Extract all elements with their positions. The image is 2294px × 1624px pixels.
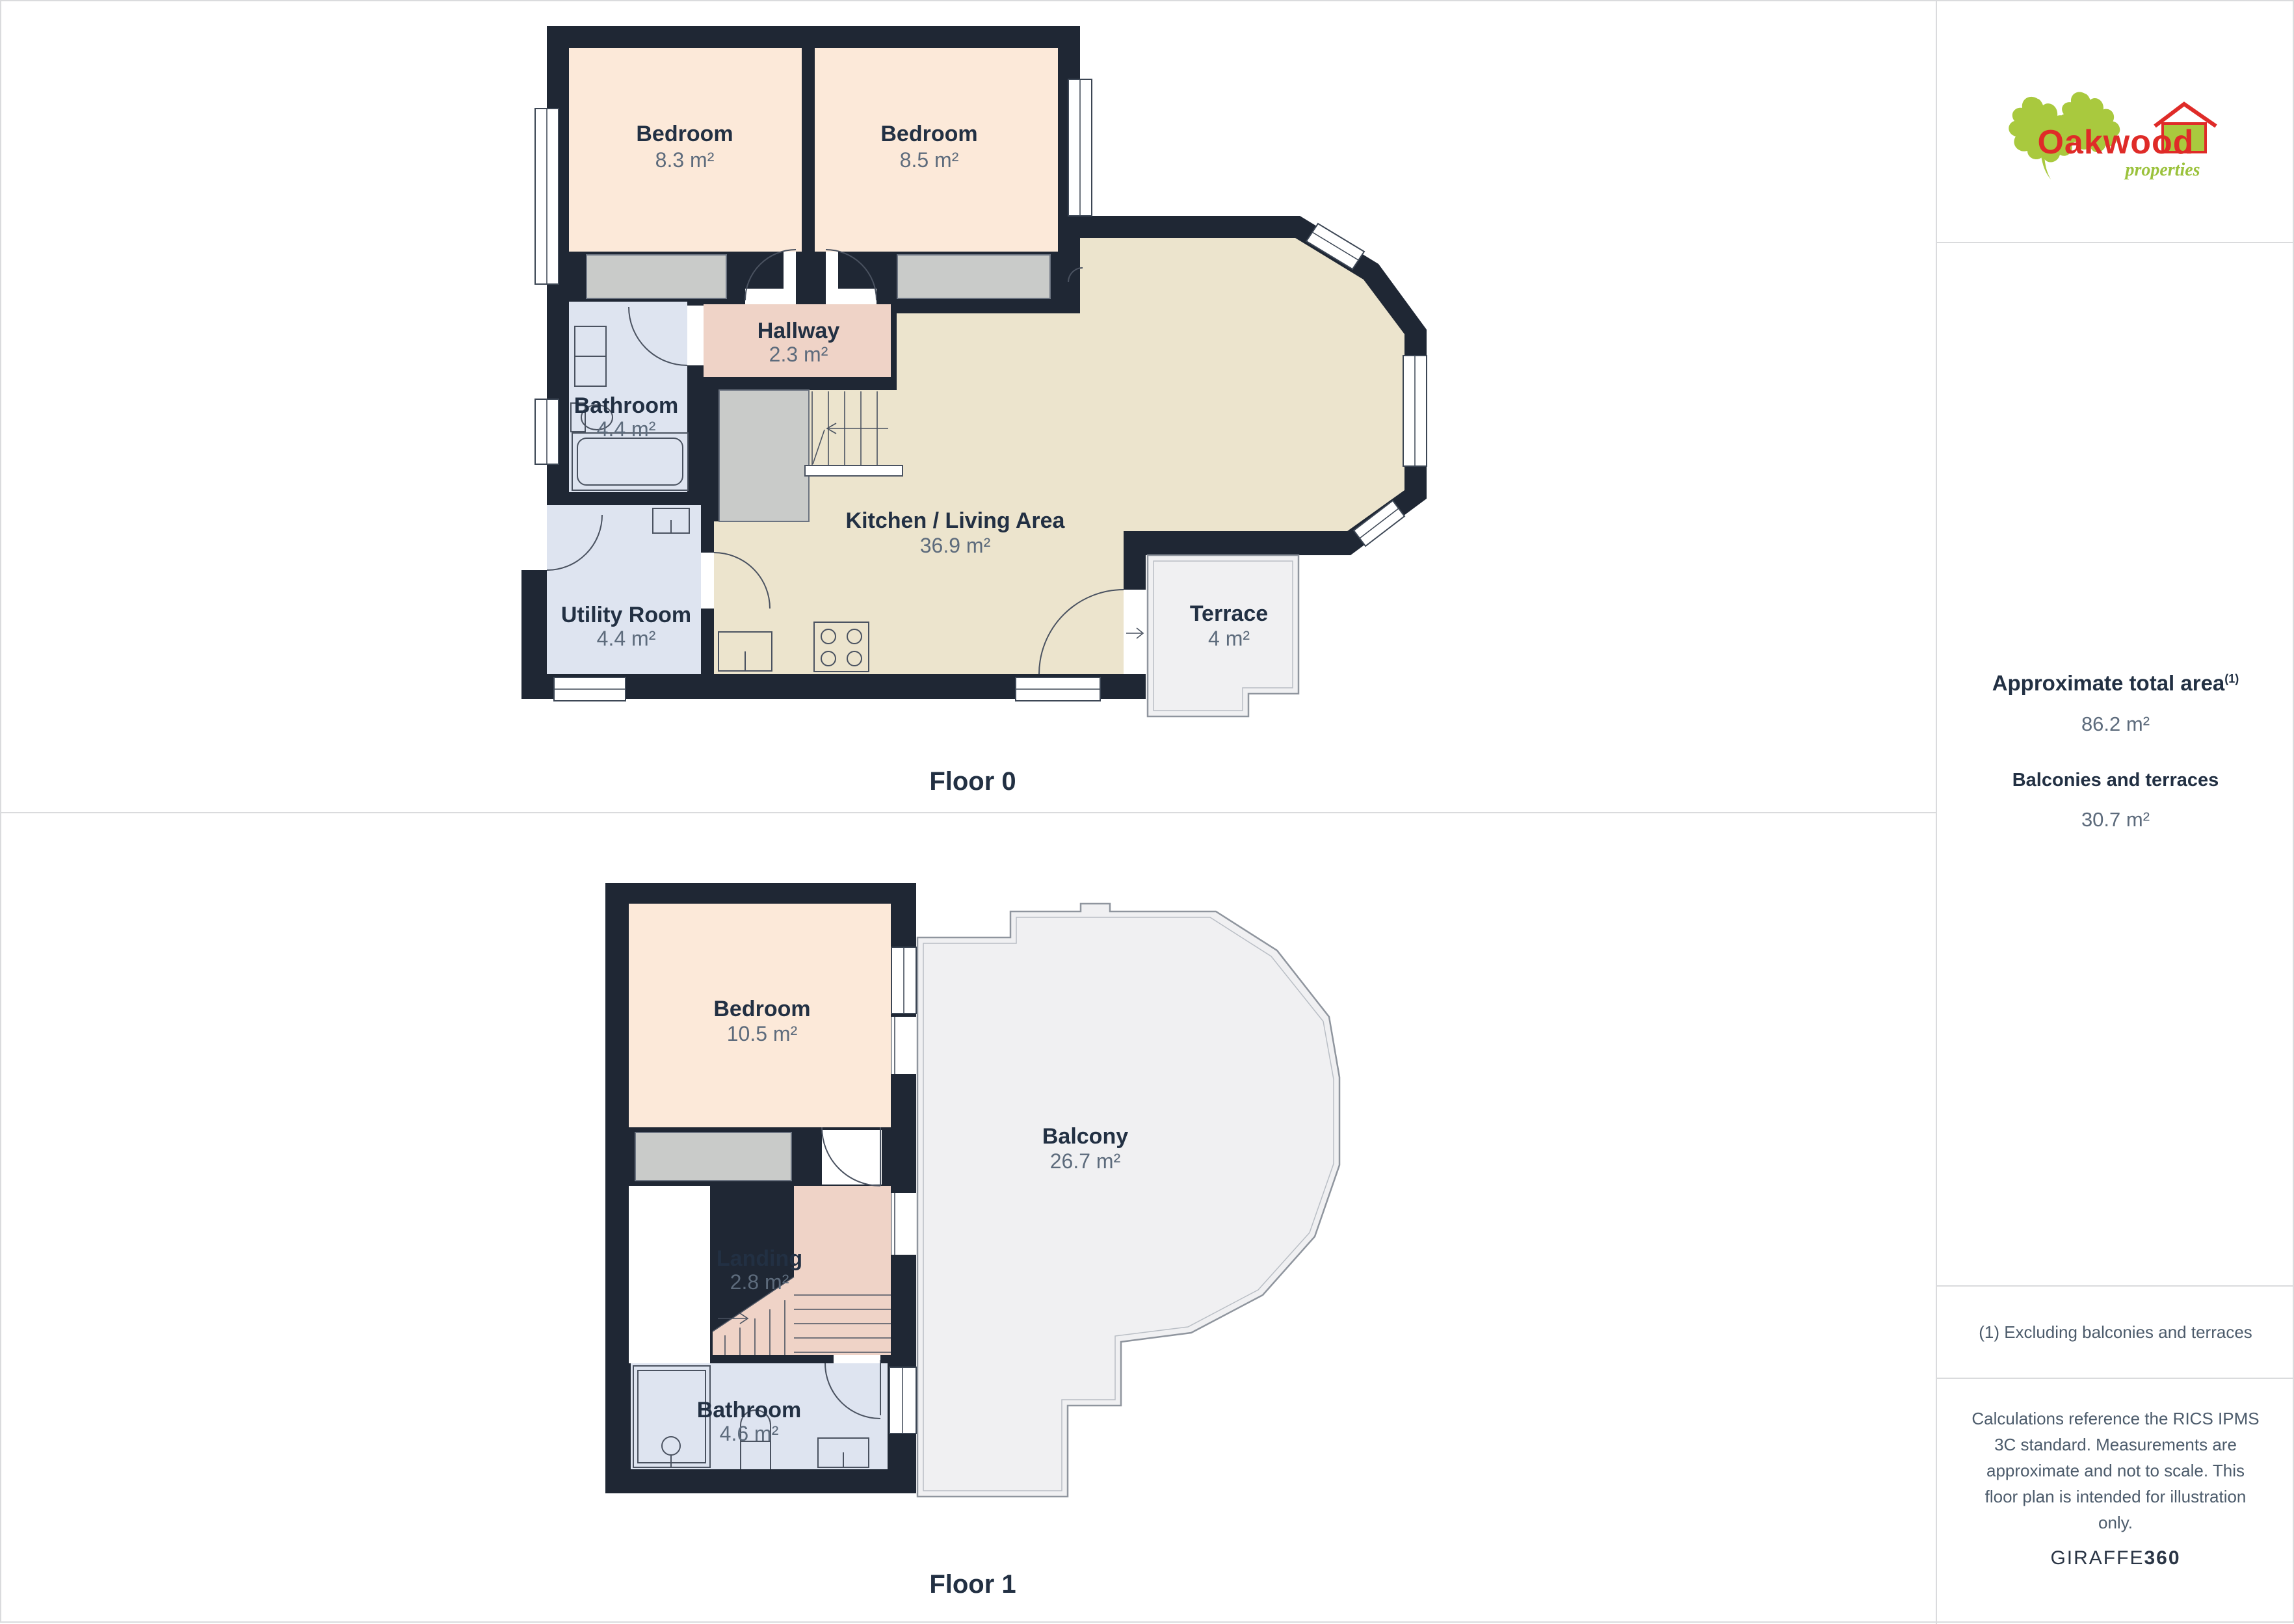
balcony: [917, 904, 1339, 1497]
closet-bedroom-2: [897, 255, 1050, 298]
credit-regular: GIRAFFE: [2050, 1547, 2144, 1569]
closet-bedroom-1: [587, 255, 726, 298]
logo-sub-text: properties: [2124, 160, 2200, 180]
room-area: 10.5 m²: [727, 1022, 798, 1045]
room-label: Bedroom: [713, 997, 810, 1021]
room-area: 26.7 m²: [1050, 1149, 1121, 1173]
disclaimer-line: only.: [1937, 1510, 2294, 1536]
room-area: 36.9 m²: [920, 534, 991, 557]
room-area: 4.6 m²: [720, 1422, 779, 1445]
disclaimer-line: approximate and not to scale. This: [1937, 1458, 2294, 1484]
disclaimer-line: 3C standard. Measurements are: [1937, 1432, 2294, 1458]
credit-bold: 360: [2144, 1547, 2180, 1569]
bedroom-f1-door: [822, 1127, 882, 1186]
room-area: 4 m²: [1208, 627, 1250, 650]
understair-area: [719, 390, 809, 521]
balconies-heading: Balconies and terraces: [1937, 770, 2294, 791]
room-area: 8.5 m²: [900, 148, 959, 172]
room-label: Terrace: [1190, 601, 1268, 626]
room-label: Hallway: [758, 319, 840, 343]
logo-brand-text: Oakwood: [2037, 124, 2194, 161]
floor-0-plan: Bedroom 8.3 m² Bedroom 8.5 m² Hallway 2.…: [1, 1, 1936, 812]
room-label: Balcony: [1042, 1124, 1128, 1149]
sidebar-section-divider: [1937, 1378, 2294, 1379]
room-label: Bedroom: [880, 122, 977, 146]
panel-divider: [1, 812, 1936, 813]
room-label: Bathroom: [574, 393, 679, 418]
room-label: Kitchen / Living Area: [846, 508, 1066, 533]
closet-bedroom-f1: [635, 1133, 791, 1181]
room-label: Bathroom: [697, 1398, 802, 1422]
room-label: Landing: [717, 1246, 802, 1271]
total-area-heading: Approximate total area(1): [1937, 671, 2294, 696]
sidebar-section-divider: [1937, 1285, 2294, 1287]
disclaimer: Calculations reference the RICS IPMS 3C …: [1937, 1406, 2294, 1536]
room-label: Utility Room: [561, 603, 691, 627]
giraffe360-credit: GIRAFFE360: [1937, 1547, 2294, 1569]
room-area: 4.4 m²: [597, 417, 656, 441]
floor-1-plan: Bedroom 10.5 m² Balcony 26.7 m² Landing …: [1, 812, 1936, 1624]
void-area: [629, 1186, 710, 1363]
footnote-marker: (1): [2224, 672, 2239, 685]
room-area: 2.8 m²: [730, 1270, 789, 1294]
floorplan-page: Bedroom 8.3 m² Bedroom 8.5 m² Hallway 2.…: [0, 0, 2294, 1623]
disclaimer-line: floor plan is intended for illustration: [1937, 1484, 2294, 1510]
footnote: (1) Excluding balconies and terraces: [1937, 1322, 2294, 1342]
disclaimer-line: Calculations reference the RICS IPMS: [1937, 1406, 2294, 1432]
room-area: 2.3 m²: [769, 343, 828, 366]
room-area: 4.4 m²: [597, 627, 656, 650]
balconies-value: 30.7 m²: [1937, 808, 2294, 832]
room-area: 8.3 m²: [655, 148, 715, 172]
area-summary: Approximate total area(1) 86.2 m² Balcon…: [1937, 671, 2294, 832]
total-area-value: 86.2 m²: [1937, 713, 2294, 736]
oakwood-logo-graphic: Oakwood properties: [1999, 86, 2233, 196]
floor-1-label: Floor 1: [929, 1570, 1016, 1599]
sidebar-section-divider: [1937, 242, 2294, 243]
floor-0-label: Floor 0: [929, 767, 1016, 796]
agency-logo: Oakwood properties: [1937, 86, 2294, 209]
room-label: Bedroom: [636, 122, 733, 146]
